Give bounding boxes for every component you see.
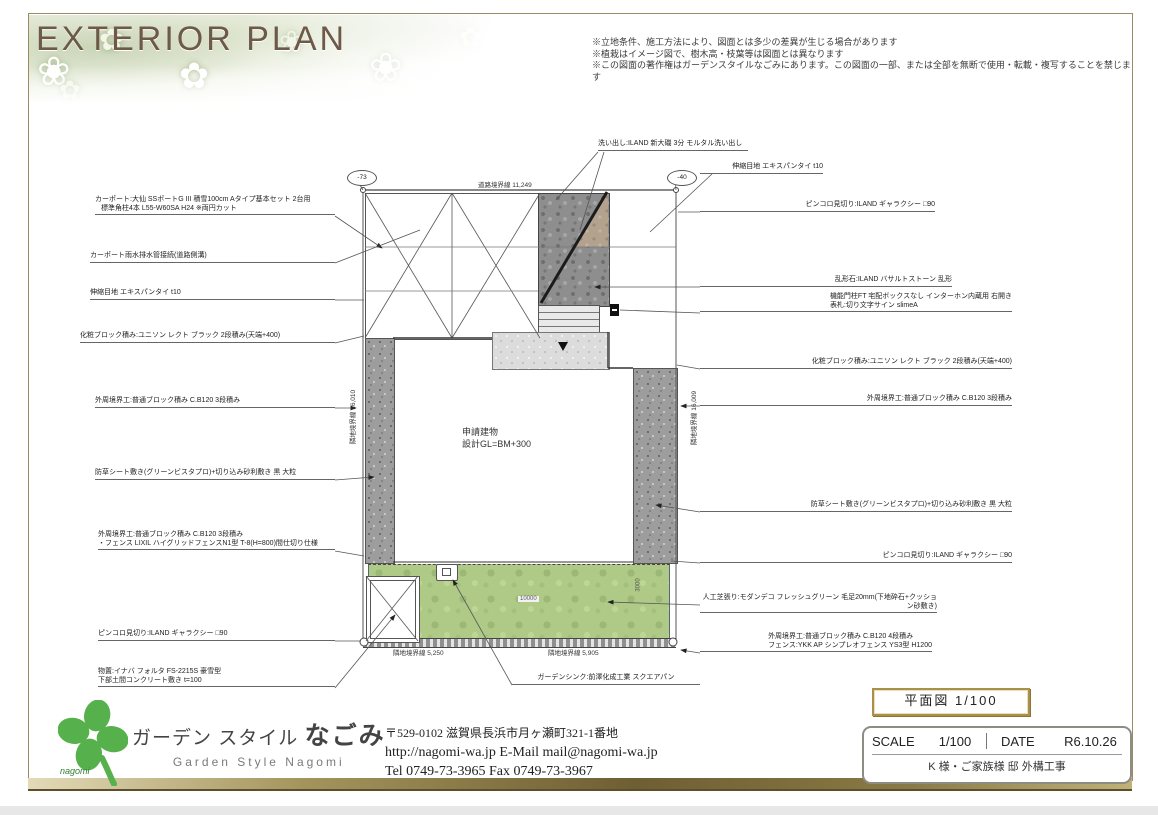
- scale-date-row: SCALE 1/100 DATE R6.10.26: [864, 728, 1130, 754]
- callout-text: ピンコロ見切り:ILAND ギャラクシー □90: [700, 201, 935, 210]
- callout-artificial-turf: 人工芝張り:モダンデコ フレッシュグリーン 毛足20mm(下地砕石+クッション砂…: [700, 594, 937, 613]
- tel-fax: Tel 0749-73-3965 Fax 0749-73-3967: [385, 762, 658, 781]
- bottom-boundary-right-label: 隣地境界線 5,905: [548, 647, 599, 657]
- callout-text: カーポート:大仙 SSポートG III 積雪100cm Aタイプ基本セット 2台…: [95, 196, 335, 205]
- callout-gate-pillar: 機能門柱FT 宅配ボックスなし インターホン内蔵用 右開き 表札:切り文字サイン…: [700, 293, 1012, 312]
- entrance-landing: [492, 332, 610, 370]
- callout-text: ピンコロ見切り:ILAND ギャラクシー □90: [700, 552, 1012, 561]
- callout-text: 表札:切り文字サイン slimeA: [830, 302, 1012, 311]
- page-title: EXTERIOR PLAN: [36, 20, 347, 59]
- callout-text: 化粧ブロック積み:ユニソン レクト ブラック 2段積み(天端+400): [700, 358, 1012, 367]
- callout-perimeter-wall-left: 外周境界工:普通ブロック積み C.B120 3段積み: [95, 397, 335, 408]
- callout-decor-block-right: 化粧ブロック積み:ユニソン レクト ブラック 2段積み(天端+400): [700, 358, 1012, 369]
- callout-weedsheet-right: 防草シート敷き(グリーンビスタプロ)+切り込み砂利敷き 黒 大粒: [700, 501, 1012, 512]
- callout-text-block: 機能門柱FT 宅配ボックスなし インターホン内蔵用 右開き 表札:切り文字サイン…: [830, 293, 1012, 310]
- disclaimer-line: ※この図面の著作権はガーデンスタイルなごみにあります。この図面の一部、または全部…: [592, 60, 1137, 83]
- entrance-steps: [538, 305, 600, 334]
- callout-perimeter-fence-right: 外周境界工:普通ブロック積み C.B120 4段積み フェンス:YKK AP シ…: [700, 633, 932, 652]
- callout-text: 外周境界工:普通ブロック積み C.B120 3段積み: [98, 531, 335, 540]
- callout-text: 乱形石:ILAND バサルトストーン 乱形: [700, 276, 952, 285]
- callout-text: 外周境界工:普通ブロック積み C.B120 4段積み: [768, 633, 932, 642]
- exterior-plan-sheet: ❀ ✿ ✿ ❀ ❀ ✿ ✿ EXTERIOR PLAN ※立地条件、施工方法によ…: [0, 0, 1158, 815]
- company-logo: nagomi: [58, 700, 128, 786]
- callout-text: 機能門柱FT 宅配ボックスなし インターホン内蔵用 右開き: [830, 293, 1012, 302]
- callout-perimeter-fence-left: 外周境界工:普通ブロック積み C.B120 3段積み ・フェンス LIXIL ハ…: [98, 531, 335, 550]
- building-label: 申請建物 設計GL=BM+300: [462, 426, 531, 450]
- callout-text: 洗い出し:ILAND 新大磯 3分 モルタル洗い出し: [598, 140, 742, 147]
- postal-address: 〒529-0102 滋賀県長浜市月ヶ瀬町321-1番地: [385, 724, 658, 741]
- callout-pinkoro-bottom-right: ピンコロ見切り:ILAND ギャラクシー □90: [700, 552, 1012, 563]
- elevation-marker-left: -73: [347, 170, 377, 186]
- elevation-marker-right: -40: [667, 170, 697, 186]
- bottom-gray-strip: [0, 806, 1158, 815]
- gate-pillar-slot: [612, 309, 617, 311]
- disclaimer-line: ※立地条件、施工方法により、図面とは多少の差異が生じる場合があります: [592, 37, 1137, 49]
- scale-label: SCALE: [864, 734, 924, 749]
- project-name: K 様・ご家族様 邸 外構工事: [864, 755, 1130, 779]
- callout-text: ピンコロ見切り:ILAND ギャラクシー □90: [98, 630, 335, 639]
- company-name-en: Garden Style Nagomi: [132, 755, 386, 769]
- callout-garden-sink: ガーデンシンク:前澤化成工業 スクエアパン: [512, 674, 700, 685]
- gravel-strip-right: [633, 368, 678, 564]
- callout-pinkoro-left: ピンコロ見切り:ILAND ギャラクシー □90: [98, 630, 335, 641]
- callout-carport: カーポート:大仙 SSポートG III 積雪100cm Aタイプ基本セット 2台…: [95, 196, 335, 215]
- scale-value: 1/100: [924, 734, 986, 749]
- company-name-part1: ガーデン スタイル: [132, 728, 305, 749]
- callout-wash: 洗い出し:ILAND 新大磯 3分 モルタル洗い出し: [598, 140, 748, 151]
- callout-perimeter-wall-right: 外周境界工:普通ブロック積み C.B120 3段積み: [700, 395, 1012, 406]
- callout-text: カーポート雨水排水管接続(道路側溝): [90, 252, 335, 261]
- callout-text: 物置:イナバ フォルタ FS-2215S 豪雪型: [98, 668, 335, 677]
- turf-width-dim: 10000: [518, 596, 539, 602]
- callout-text: フェンス:YKK AP シンプレオフェンス YS3型 H1200: [768, 642, 932, 651]
- callout-weedsheet-left: 防草シート敷き(グリーンビスタプロ)+切り込み砂利敷き 黒 大粒: [95, 469, 335, 480]
- gravel-strip-left: [365, 338, 395, 564]
- callout-text: 下部土間コンクリート敷き t=100: [98, 677, 335, 686]
- callout-text: 化粧ブロック積み:ユニソン レクト ブラック 2段積み(天端+400): [80, 332, 335, 341]
- callout-rubble-stone: 乱形石:ILAND バサルトストーン 乱形: [700, 276, 952, 287]
- disclaimer-line: ※植栽はイメージ図で、樹木高・枝葉等は図面とは異なります: [592, 49, 1137, 61]
- logo-mark-text: nagomi: [60, 766, 90, 776]
- callout-text: 伸縮目地 エキスパンタイ t10: [700, 163, 823, 172]
- callout-text-block: 外周境界工:普通ブロック積み C.B120 4段積み フェンス:YKK AP シ…: [768, 633, 932, 650]
- callout-text: ・フェンス LIXIL ハイグリッドフェンスN1型 T-8(H=800)間仕切り…: [98, 540, 335, 549]
- side-boundary-right-label: 隣地境界線 16,009: [688, 378, 698, 458]
- road-boundary-label: 道路境界線 11,249: [478, 179, 532, 189]
- company-address-block: 〒529-0102 滋賀県長浜市月ヶ瀬町321-1番地 http://nagom…: [385, 724, 658, 781]
- storage-shed: [366, 576, 420, 643]
- drawing-title-box: 平面図 1/100: [872, 688, 1030, 716]
- company-name-part2: なごみ: [305, 722, 386, 750]
- turf-height-dim: 3000: [636, 576, 642, 593]
- building-gl: 設計GL=BM+300: [462, 438, 531, 450]
- callout-carport-drain: カーポート雨水排水管接続(道路側溝): [90, 252, 335, 263]
- callout-text: 外周境界工:普通ブロック積み C.B120 3段積み: [95, 397, 335, 406]
- bottom-boundary-left-label: 隣地境界線 5,250: [393, 647, 444, 657]
- side-boundary-left-label: 隣地境界線 16,010: [347, 377, 357, 457]
- date-value: R6.10.26: [1051, 734, 1130, 749]
- callout-text: 伸縮目地 エキスパンタイ t10: [90, 289, 335, 298]
- callout-expansion-joint-left: 伸縮目地 エキスパンタイ t10: [90, 289, 335, 300]
- title-block: SCALE 1/100 DATE R6.10.26 K 様・ご家族様 邸 外構工…: [862, 726, 1132, 784]
- company-name-block: ガーデン スタイル なごみ Garden Style Nagomi: [132, 716, 386, 769]
- carport-area: [365, 193, 542, 340]
- callout-text: 防草シート敷き(グリーンビスタプロ)+切り込み砂利敷き 黒 大粒: [700, 501, 1012, 510]
- building-name: 申請建物: [462, 426, 531, 438]
- callout-decor-block-left: 化粧ブロック積み:ユニソン レクト ブラック 2段積み(天端+400): [80, 332, 335, 343]
- web-email: http://nagomi-wa.jp E-Mail mail@nagomi-w…: [385, 743, 658, 762]
- company-name-jp: ガーデン スタイル なごみ: [132, 716, 386, 752]
- callout-text: 標準角柱4本 L55-W60SA H24 ※両円カット: [95, 205, 335, 214]
- disclaimer-notes: ※立地条件、施工方法により、図面とは多少の差異が生じる場合があります ※植栽はイ…: [592, 37, 1137, 83]
- callout-expansion-joint-right: 伸縮目地 エキスパンタイ t10: [700, 163, 823, 174]
- callout-text: ガーデンシンク:前澤化成工業 スクエアパン: [537, 674, 674, 681]
- garden-sink-basin: [442, 568, 451, 576]
- date-label: DATE: [987, 734, 1051, 749]
- callout-text: 防草シート敷き(グリーンビスタプロ)+切り込み砂利敷き 黒 大粒: [95, 469, 335, 478]
- callout-text: 外周境界工:普通ブロック積み C.B120 3段積み: [700, 395, 1012, 404]
- callout-pinkoro-top-right: ピンコロ見切り:ILAND ギャラクシー □90: [700, 201, 935, 212]
- callout-shed: 物置:イナバ フォルタ FS-2215S 豪雪型 下部土間コンクリート敷き t=…: [98, 668, 335, 687]
- callout-text: 人工芝張り:モダンデコ フレッシュグリーン 毛足20mm(下地砕石+クッション砂…: [700, 594, 937, 611]
